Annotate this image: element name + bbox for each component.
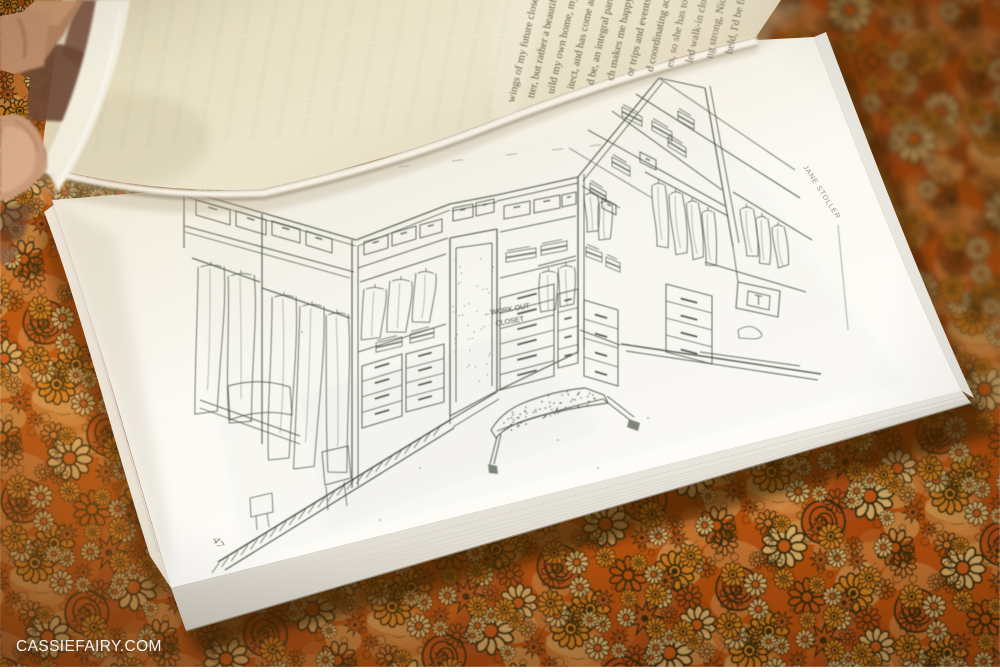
svg-text:CASSIEFAIRY.COM: CASSIEFAIRY.COM — [16, 638, 162, 655]
